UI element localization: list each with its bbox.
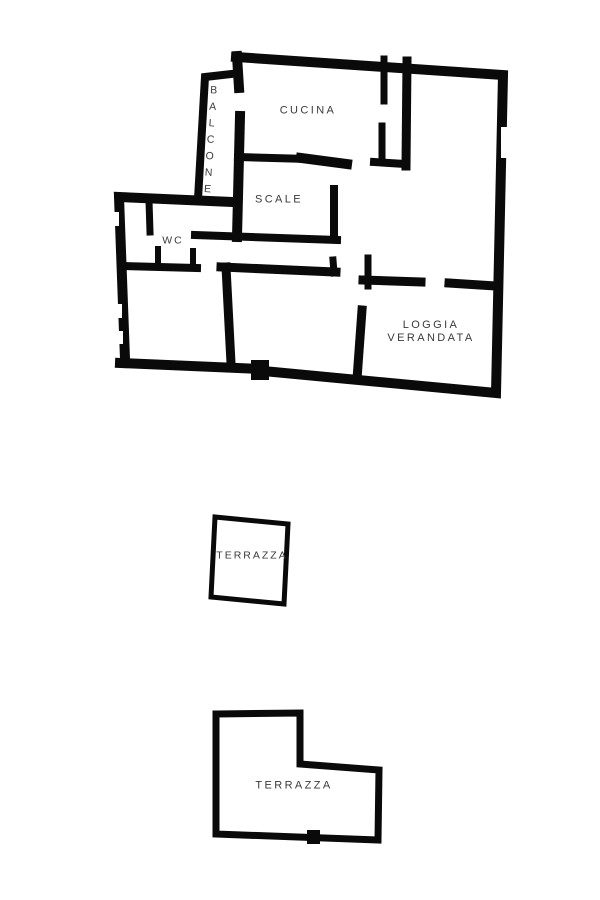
wall-middle-vertical: [226, 267, 231, 363]
wall-cucina-divider-step: [301, 158, 347, 164]
window-annex-2: [117, 304, 122, 318]
wall-bottom-jog: [251, 360, 269, 380]
wall-cucina-lpiece-foot: [374, 162, 405, 164]
floor-plan-drawing: [0, 0, 600, 900]
window-right-wall: [501, 127, 508, 158]
wall-annex-bottom: [120, 363, 260, 369]
wall-loggia-left: [357, 310, 362, 379]
room-label-loggia-verandata: LOGGIA VERANDATA: [387, 319, 474, 345]
wall-left-upper: [237, 56, 239, 88]
wall-cucina-right: [406, 61, 407, 166]
room-label-scale: SCALE: [255, 194, 303, 207]
wall-loggia-top-left: [363, 280, 421, 282]
room-label-terrazza-upper: TERRAZZA: [216, 550, 287, 563]
window-annex-1: [114, 212, 119, 226]
room-label-cucina: CUCINA: [280, 105, 337, 118]
wall-wc-bottom: [123, 266, 197, 268]
room-label-loggia-line2: VERANDATA: [387, 332, 474, 345]
wall-annex-left-top: [119, 197, 233, 359]
window-annex-3: [118, 331, 123, 344]
wall-left-lower: [237, 116, 240, 237]
wall-terrazza-lower: [216, 713, 379, 840]
wall-corridor: [221, 267, 336, 272]
wall-corridor-jamb: [333, 260, 334, 273]
wall-terrazza-nub: [307, 830, 320, 844]
wall-scale-bottom: [195, 235, 337, 240]
room-label-wc: WC: [162, 235, 184, 248]
room-label-terrazza-lower: TERRAZZA: [255, 780, 332, 793]
room-label-loggia-line1: LOGGIA: [387, 319, 474, 332]
floor-plan-page: BALCONE CUCINA SCALE WC LOGGIA VERANDATA…: [0, 0, 600, 900]
wall-loggia-top-right: [449, 283, 495, 286]
wall-wc-vertical: [149, 201, 150, 232]
walls-group: [119, 56, 503, 840]
